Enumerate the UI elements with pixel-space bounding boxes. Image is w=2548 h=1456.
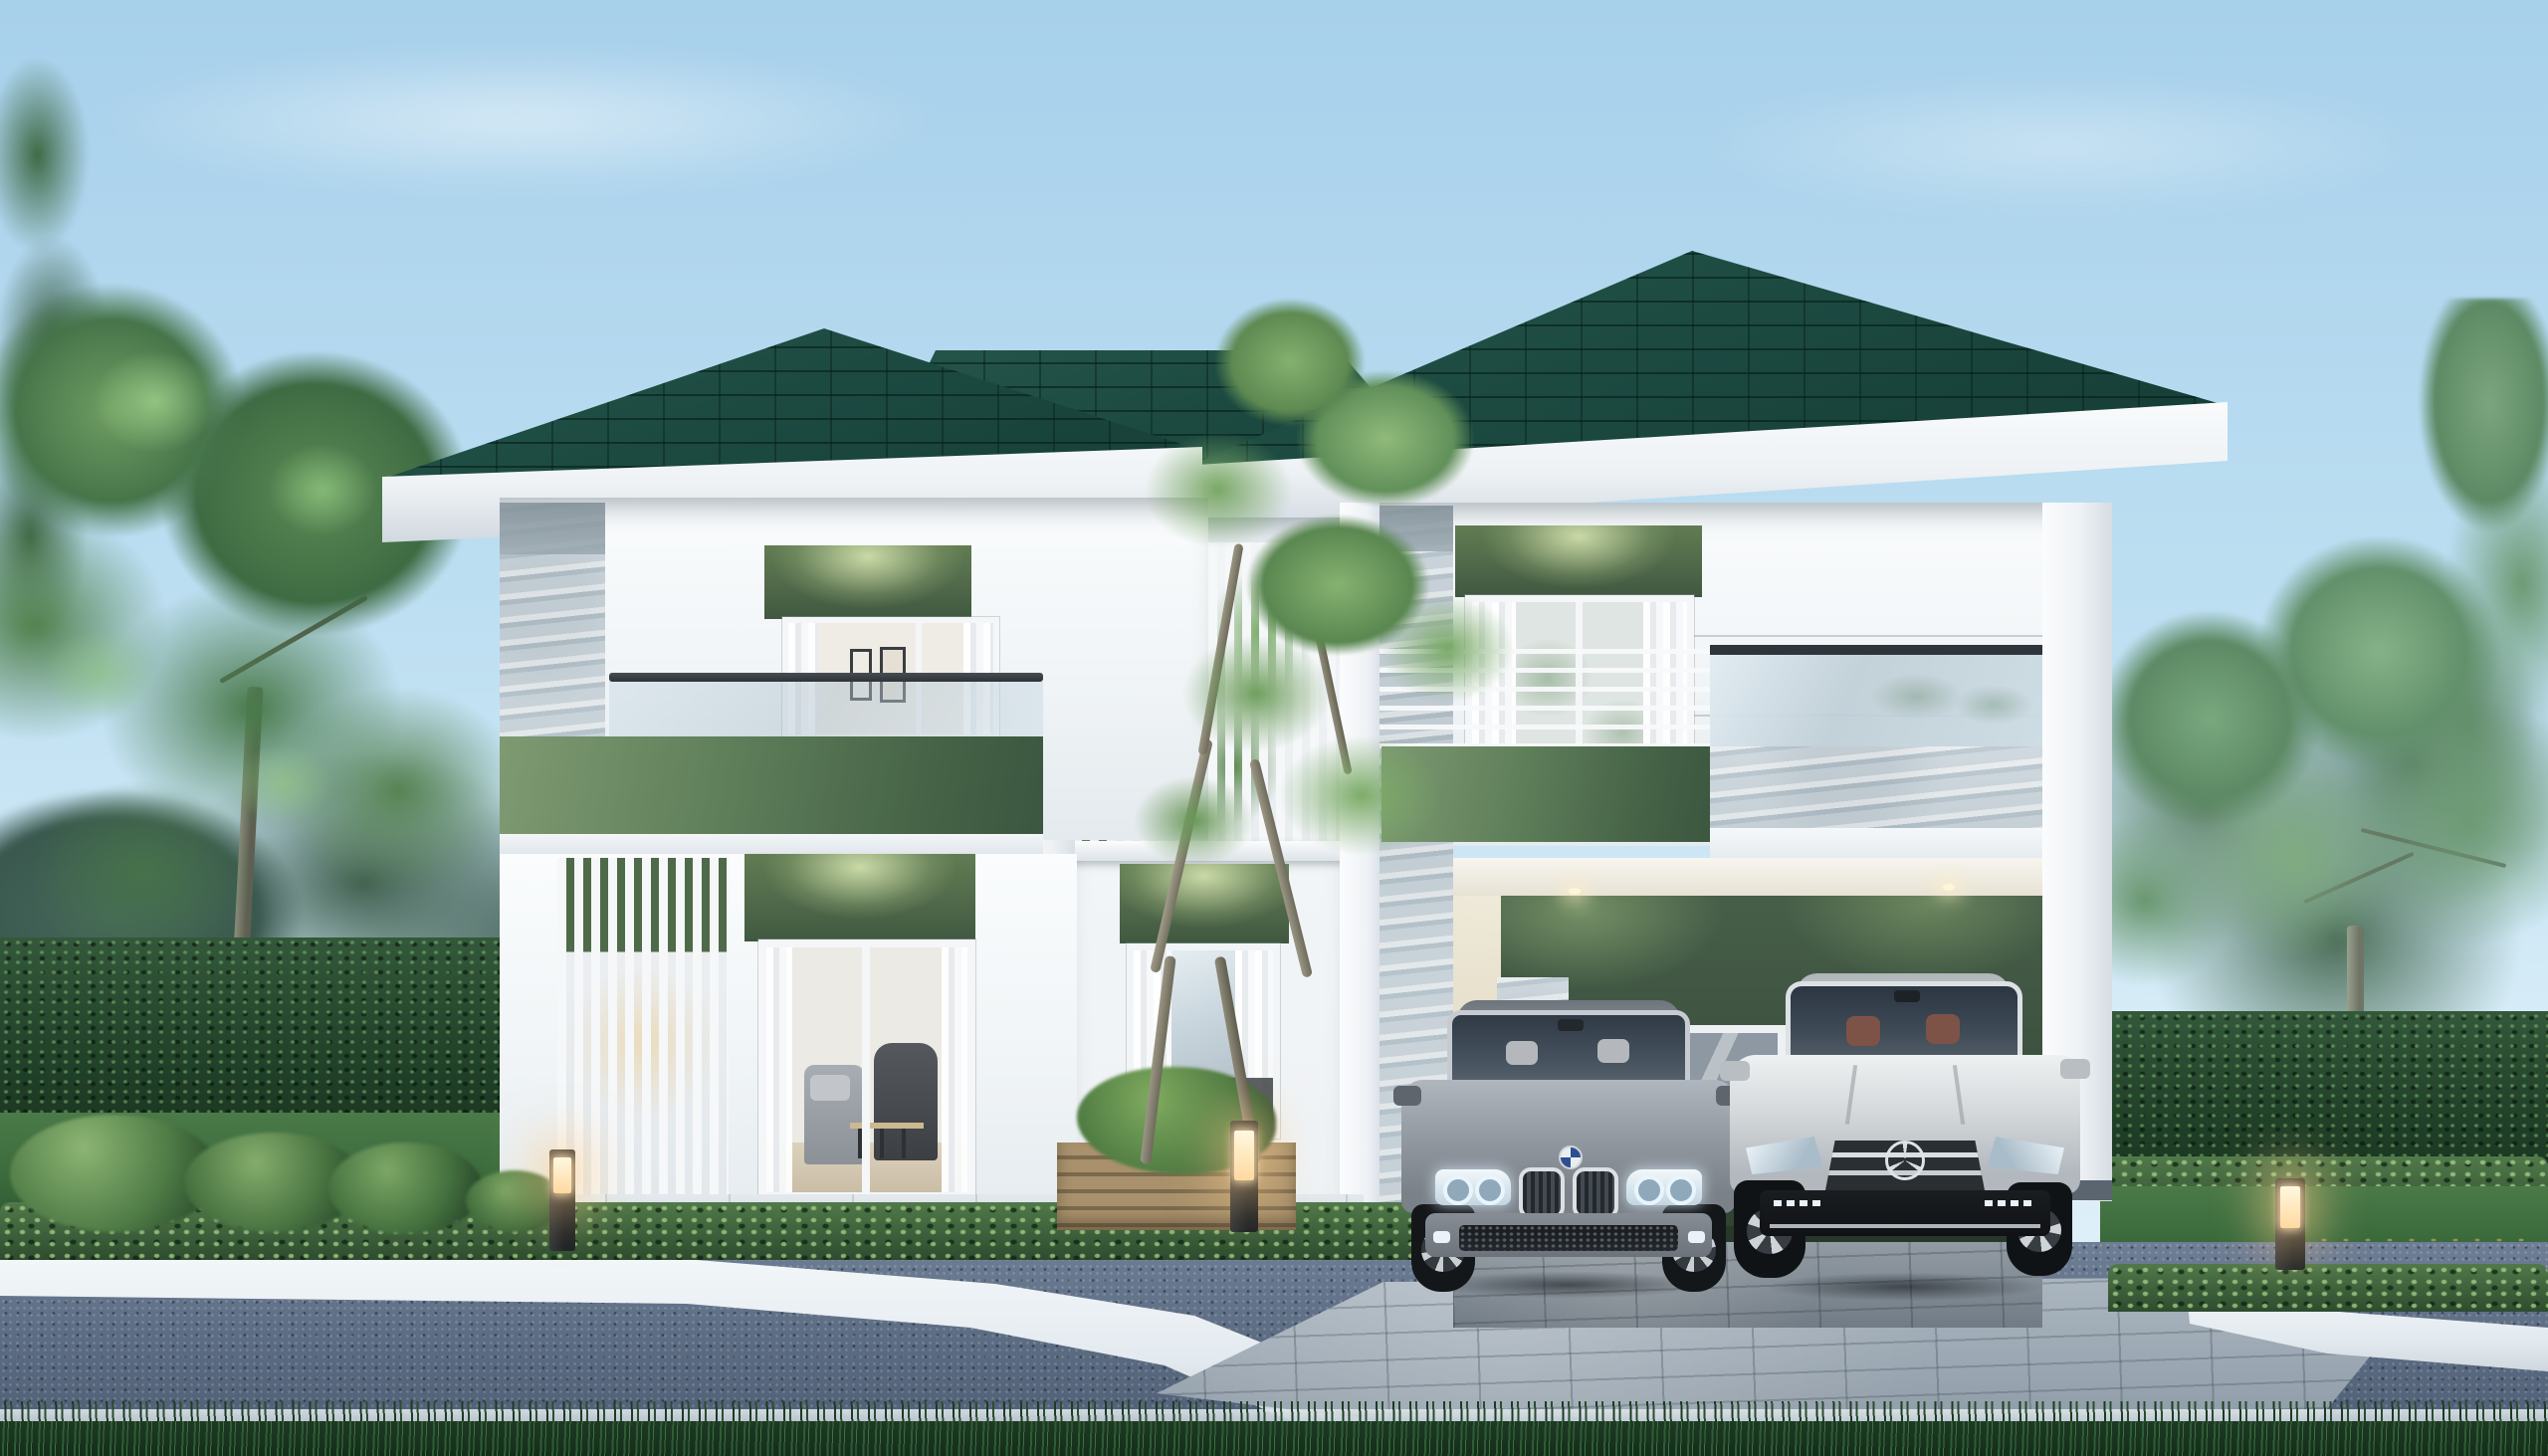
bmw-kidney-grille (1519, 1167, 1565, 1219)
parapet-glass (1710, 655, 2056, 746)
mercedes-sedan (1730, 973, 2080, 1312)
car-headrest (1597, 1039, 1629, 1063)
bmw-kidney-grille (1573, 1167, 1618, 1219)
cloud (40, 30, 995, 209)
armchair-cushion (810, 1075, 850, 1101)
left-ground-curtain (766, 947, 792, 1192)
grass-verge (0, 1421, 2548, 1456)
fog-light (1688, 1231, 1705, 1243)
left-ground-transom (744, 854, 975, 941)
headlight-ring (1475, 1175, 1505, 1205)
headlight (1626, 1169, 1702, 1205)
side-mirror (1720, 1061, 1750, 1081)
groundcover-right (2108, 1264, 2548, 1312)
rearview-mirror (1558, 1019, 1584, 1031)
headlight-ring (1443, 1175, 1473, 1205)
led-strip (1774, 1200, 1825, 1206)
headlight (1435, 1169, 1511, 1205)
carport-downlight (1943, 884, 1955, 891)
headlight-ring (1666, 1175, 1696, 1205)
cloud (1642, 60, 2478, 229)
window-mullion (862, 947, 870, 1192)
render-canvas (0, 0, 2548, 1456)
bollard-light-glow (2280, 1186, 2300, 1228)
car-lower-apron (1760, 1190, 2050, 1236)
left-ground-curtain (942, 947, 967, 1192)
car-headrest (1506, 1041, 1538, 1065)
mercedes-star (1885, 1141, 1925, 1180)
tree-left-canopy-highlight (0, 269, 518, 1005)
car-seat (1926, 1014, 1960, 1044)
rearview-mirror (1894, 990, 1920, 1002)
car-seat (1846, 1016, 1880, 1046)
tree-right-canopy (2070, 537, 2548, 1055)
fog-light (1433, 1231, 1450, 1243)
bollard-light-glow (1234, 1131, 1254, 1180)
left-ground-window (758, 939, 975, 1200)
bollard-light (1230, 1121, 1258, 1232)
bollard-light (549, 1149, 575, 1251)
parapet-cap-dark (1710, 645, 2056, 655)
left-green-parapet-band (500, 736, 1043, 834)
side-mirror (1393, 1086, 1421, 1106)
marble-dark-cap (500, 503, 605, 554)
left-slat-screen (557, 858, 729, 1194)
shrub (328, 1143, 483, 1234)
right-parapet-glass-marble (1710, 645, 2056, 872)
bollard-light-glow (553, 1157, 571, 1193)
side-mirror (2060, 1059, 2090, 1079)
bmw-roundel (1559, 1145, 1583, 1169)
headlight-ring (1634, 1175, 1664, 1205)
apron-chrome-trim (1770, 1224, 2040, 1228)
left-balcony-glass (609, 682, 1043, 737)
led-strip (1985, 1200, 2036, 1206)
bumper-intake-mesh (1459, 1225, 1678, 1251)
bollard-light (2275, 1178, 2305, 1270)
bmw-sedan (1401, 1000, 1736, 1309)
courtyard-tree-foliage (1075, 299, 1553, 936)
glass-leaf-reflection (1829, 659, 2048, 742)
carport-downlight (1569, 888, 1581, 895)
left-upper-transom (764, 545, 971, 619)
parapet-marble (1710, 746, 2056, 828)
left-balcony-handrail (609, 673, 1043, 682)
